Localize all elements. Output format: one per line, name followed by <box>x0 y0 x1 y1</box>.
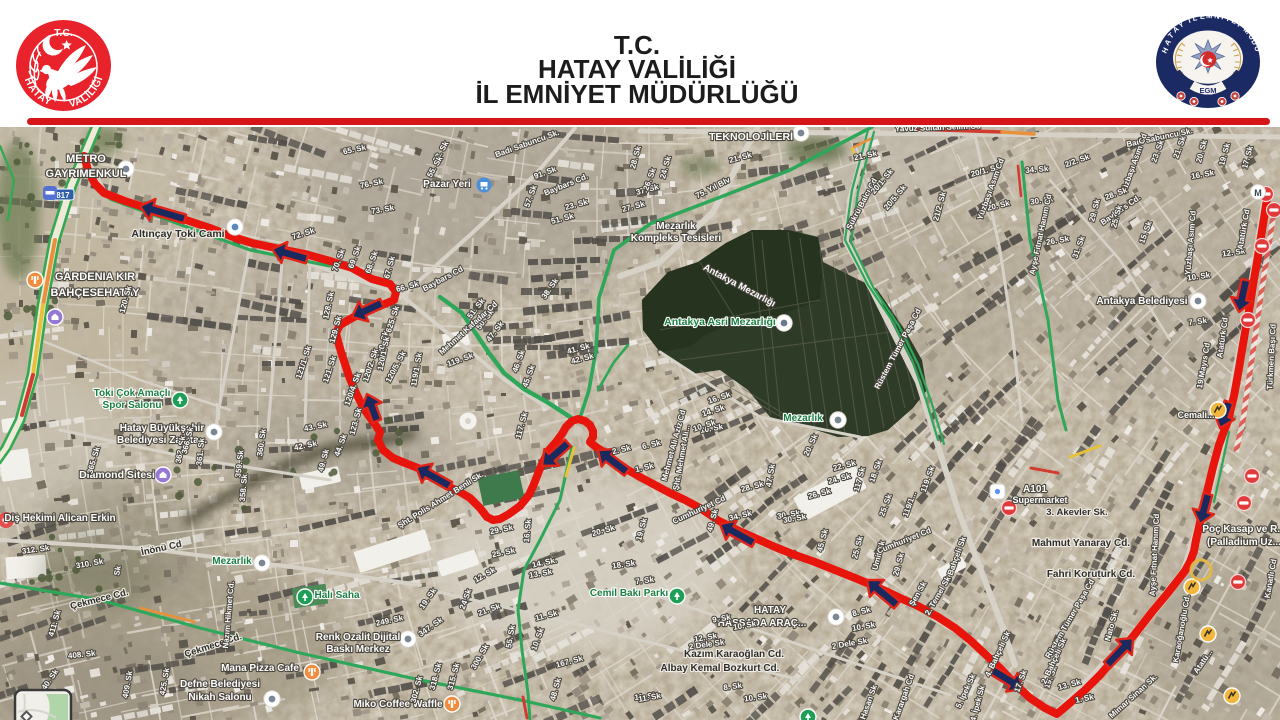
svg-text:Kazım Karaoğlan Cd.: Kazım Karaoğlan Cd. <box>684 649 784 660</box>
svg-text:Spor Salonu: Spor Salonu <box>103 400 162 411</box>
svg-text:Albay Kemal Bozkurt Cd.: Albay Kemal Bozkurt Cd. <box>661 663 780 674</box>
svg-text:Mahmut Yanaray Cd.: Mahmut Yanaray Cd. <box>1032 538 1130 549</box>
svg-text:Mezarlık: Mezarlık <box>212 556 252 567</box>
svg-text:GAYRIMENKUL: GAYRIMENKUL <box>46 168 127 180</box>
svg-text:Renk Ozalit Dijital: Renk Ozalit Dijital <box>316 632 401 643</box>
svg-text:Defne Belediyesi: Defne Belediyesi <box>180 679 260 690</box>
svg-text:Halı Saha: Halı Saha <box>314 590 359 601</box>
svg-text:Mezarlık: Mezarlık <box>656 221 696 232</box>
svg-text:A101: A101 <box>1023 484 1047 495</box>
svg-text:M: M <box>1254 188 1262 198</box>
svg-text:Kompleks Tesisleri: Kompleks Tesisleri <box>631 233 722 244</box>
svg-text:Diş Hekimi Alican Erkin: Diş Hekimi Alican Erkin <box>4 513 115 524</box>
svg-text:Toki Çok Amaçlı: Toki Çok Amaçlı <box>94 388 171 399</box>
svg-text:TEKNOLOJİLERİ: TEKNOLOJİLERİ <box>709 130 793 143</box>
svg-text:Baskı Merkez: Baskı Merkez <box>326 644 389 655</box>
svg-text:Antakya Asri Mezarlığı: Antakya Asri Mezarlığı <box>664 316 776 328</box>
svg-text:Mana Pizza Cafe: Mana Pizza Cafe <box>221 663 299 674</box>
svg-text:Cemali...: Cemali... <box>1177 410 1214 420</box>
svg-text:E: E <box>1200 12 1205 21</box>
svg-text:EGM: EGM <box>1199 86 1216 95</box>
svg-text:Mezarlık: Mezarlık <box>783 413 823 424</box>
svg-text:GARDENIA KIR: GARDENIA KIR <box>55 271 135 283</box>
svg-text:İL EMNİYET MÜDÜRLÜĞÜ: İL EMNİYET MÜDÜRLÜĞÜ <box>475 79 798 109</box>
svg-text:Miko Coffee Waffle: Miko Coffee Waffle <box>353 699 443 710</box>
svg-text:(Palladium Uz...: (Palladium Uz... <box>1207 537 1280 548</box>
svg-text:3. Akevler Sk.: 3. Akevler Sk. <box>1046 507 1107 518</box>
svg-text:Altınçay Toki Cami: Altınçay Toki Cami <box>131 228 224 240</box>
svg-text:Poç Kasap ve R...: Poç Kasap ve R... <box>1202 524 1280 535</box>
svg-text:M: M <box>1206 11 1213 20</box>
svg-text:METRO: METRO <box>66 153 106 165</box>
svg-text:Belediyesi Zabıta...: Belediyesi Zabıta... <box>117 435 207 446</box>
svg-text:Fahri Koruturk Cd.: Fahri Koruturk Cd. <box>1047 569 1136 580</box>
svg-text:Supermarket: Supermarket <box>1012 495 1067 505</box>
svg-text:HATAY: HATAY <box>754 605 786 616</box>
svg-text:Nikah Salonu: Nikah Salonu <box>188 692 251 703</box>
svg-text:Cemil Bakı Parkı: Cemil Bakı Parkı <box>590 588 669 599</box>
svg-text:Antakya Belediyesi: Antakya Belediyesi <box>1096 296 1187 307</box>
svg-text:Pazar Yeri: Pazar Yeri <box>423 179 471 190</box>
